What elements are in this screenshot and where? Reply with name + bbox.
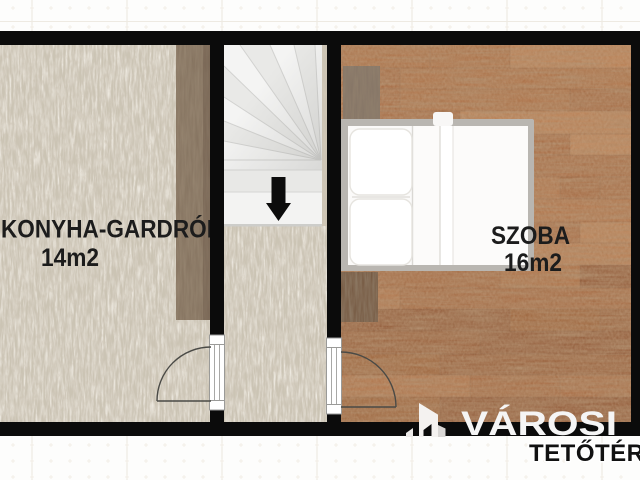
svg-text:14m2: 14m2 bbox=[41, 244, 99, 272]
svg-text:TETŐTÉR: TETŐTÉR bbox=[529, 439, 640, 467]
svg-text:16m2: 16m2 bbox=[504, 249, 562, 277]
svg-text:KONYHA-GARDRÓB: KONYHA-GARDRÓB bbox=[1, 214, 223, 244]
svg-text:SZOBA: SZOBA bbox=[491, 222, 570, 250]
svg-text:VÁROSI: VÁROSI bbox=[461, 405, 617, 443]
